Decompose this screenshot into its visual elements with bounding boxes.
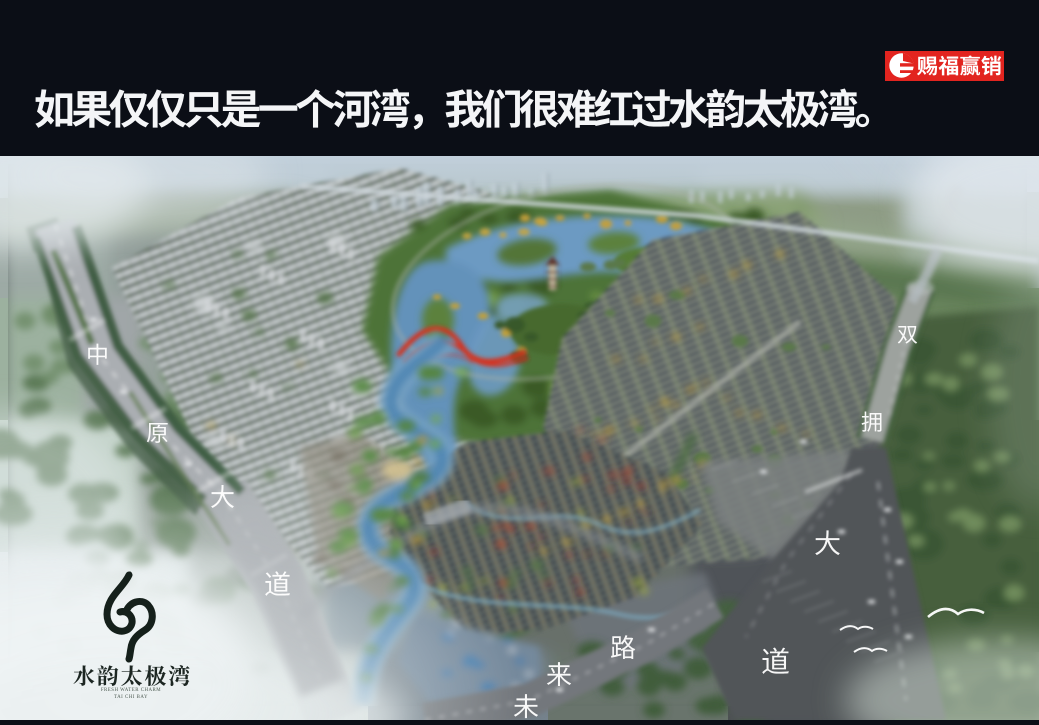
svg-text:TAI CHI BAY: TAI CHI BAY [114, 695, 148, 700]
svg-text:FRESH WATER CHARM: FRESH WATER CHARM [101, 688, 161, 693]
